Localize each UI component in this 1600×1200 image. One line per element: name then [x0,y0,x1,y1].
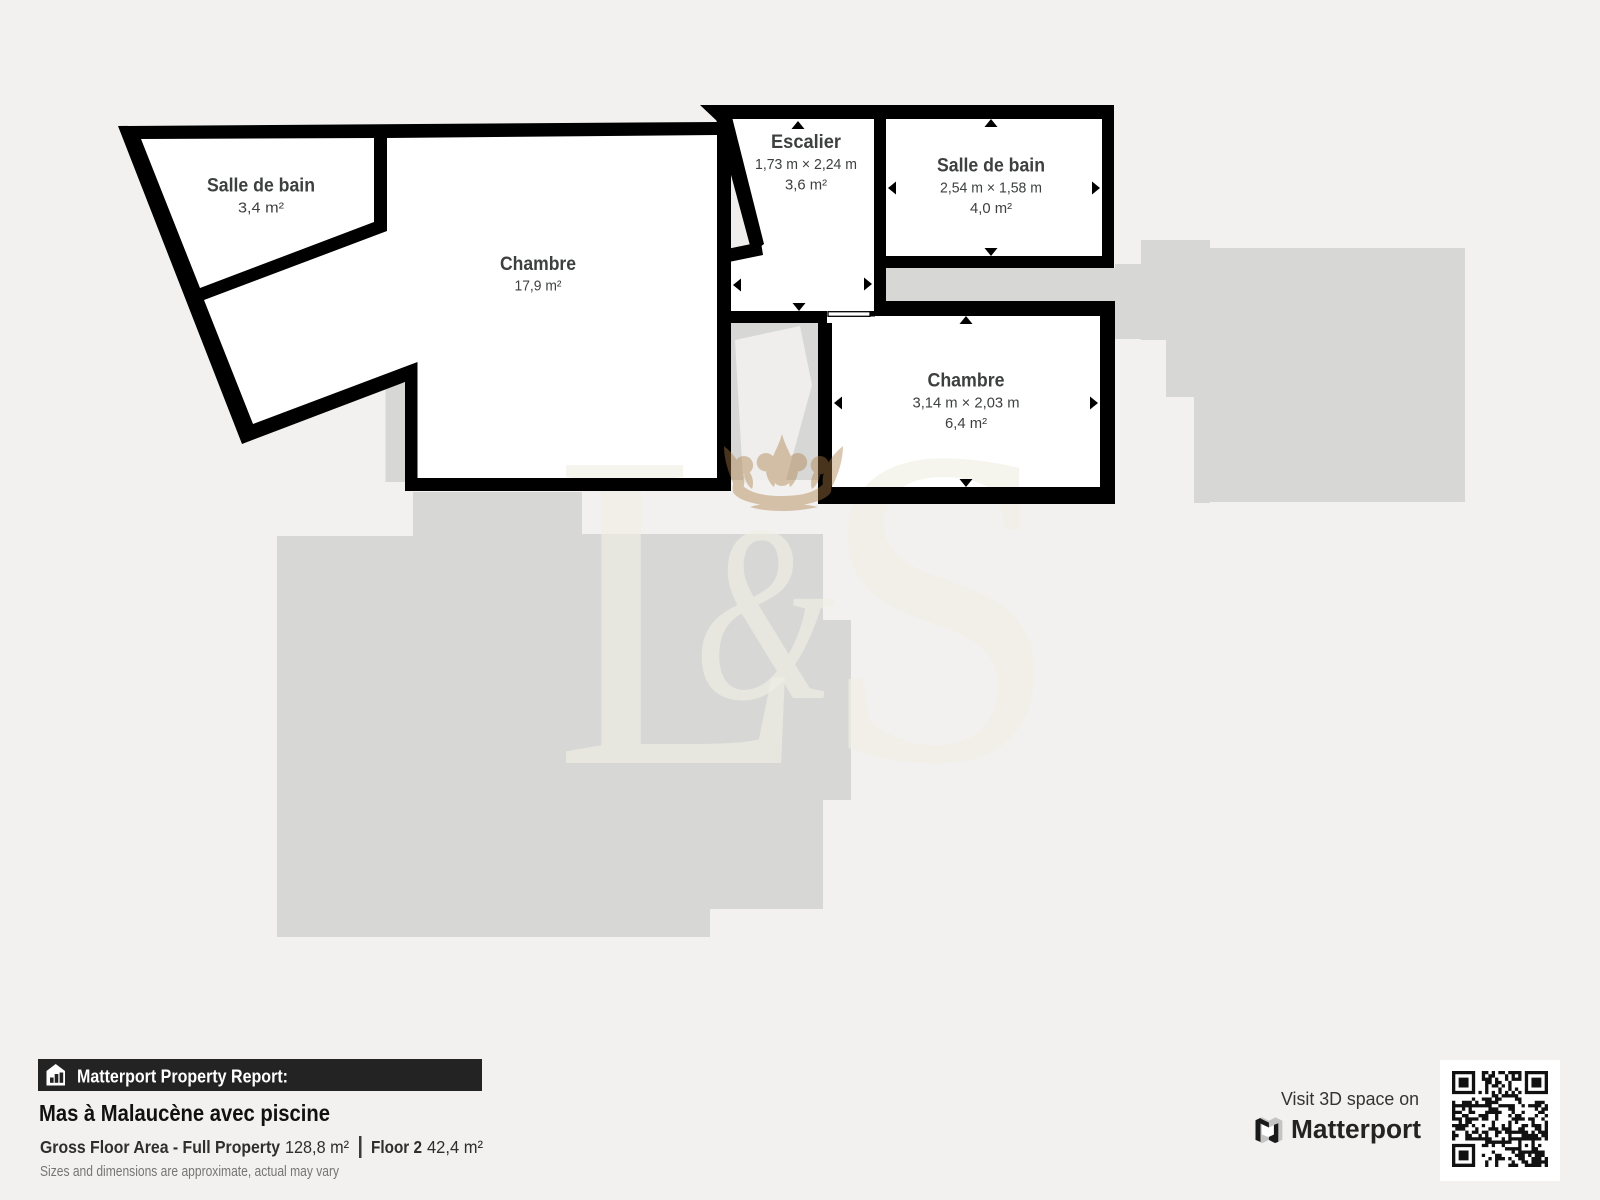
svg-text:S: S [819,355,1061,858]
svg-text:Salle de bain: Salle de bain [937,156,1045,177]
svg-text:3,14 m × 2,03 m: 3,14 m × 2,03 m [913,396,1020,412]
svg-text:Matterport: Matterport [1291,1116,1422,1144]
svg-text:&: & [694,473,835,753]
svg-text:Matterport Property Report:: Matterport Property Report: [77,1067,288,1087]
svg-text:Escalier: Escalier [771,132,842,153]
svg-text:Mas à Malaucène avec piscine: Mas à Malaucène avec piscine [39,1100,330,1126]
svg-text:42,4 m²: 42,4 m² [427,1137,483,1157]
svg-text:Salle de bain: Salle de bain [207,176,315,197]
svg-text:17,9 m²: 17,9 m² [515,279,562,295]
svg-text:Chambre: Chambre [500,254,576,275]
svg-text:Chambre: Chambre [928,371,1005,392]
svg-text:128,8 m²: 128,8 m² [285,1137,349,1157]
svg-text:Visit 3D space on: Visit 3D space on [1281,1088,1419,1109]
svg-text:3,4 m²: 3,4 m² [238,201,284,217]
svg-text:2,54 m × 1,58 m: 2,54 m × 1,58 m [940,181,1042,197]
svg-text:Floor 2: Floor 2 [371,1137,422,1157]
svg-text:3,6 m²: 3,6 m² [785,178,827,194]
svg-text:4,0 m²: 4,0 m² [970,201,1012,217]
svg-text:1,73 m × 2,24 m: 1,73 m × 2,24 m [755,157,857,173]
svg-text:Sizes and dimensions are appro: Sizes and dimensions are approximate, ac… [40,1164,340,1180]
svg-text:6,4 m²: 6,4 m² [945,416,987,432]
svg-text:Gross Floor Area - Full Proper: Gross Floor Area - Full Property [40,1137,280,1157]
